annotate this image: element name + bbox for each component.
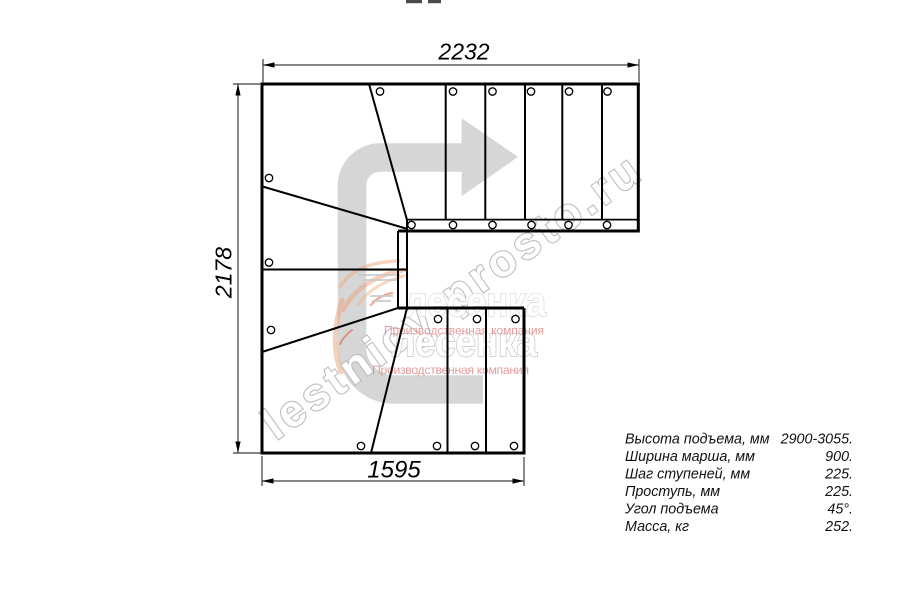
svg-text:225.: 225. <box>824 484 853 500</box>
svg-text:225.: 225. <box>824 467 853 483</box>
svg-text:2232: 2232 <box>437 39 489 65</box>
svg-text:45°.: 45°. <box>827 502 853 518</box>
svg-text:Высота подъема, мм: Высота подъема, мм <box>625 432 770 448</box>
svg-text:2178: 2178 <box>211 247 237 299</box>
svg-text:Производственная компания: Производственная компания <box>372 363 529 377</box>
svg-text:Угол подъема: Угол подъема <box>624 502 719 518</box>
svg-text:Ширина марша, мм: Ширина марша, мм <box>625 449 755 465</box>
svg-text:Шаг ступеней, мм: Шаг ступеней, мм <box>625 467 750 483</box>
svg-text:900.: 900. <box>825 449 853 465</box>
svg-text:252.: 252. <box>824 519 853 535</box>
svg-text:Производственная компания: Производственная компания <box>384 324 544 338</box>
svg-text:1595: 1595 <box>367 457 421 484</box>
svg-text:2900-3055.: 2900-3055. <box>780 432 853 448</box>
svg-text:Масса, кг: Масса, кг <box>625 519 689 535</box>
svg-text:Проступь, мм: Проступь, мм <box>625 484 720 500</box>
